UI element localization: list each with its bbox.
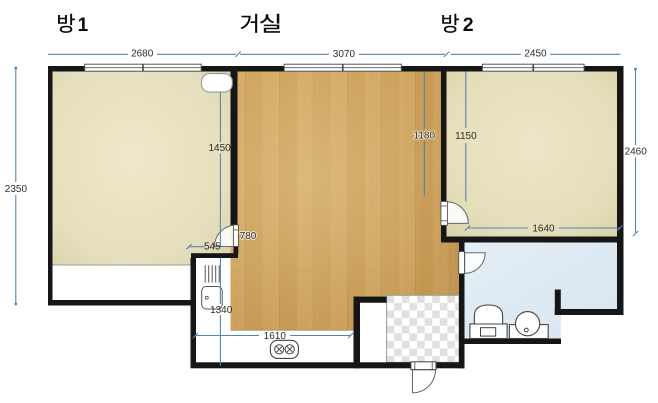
svg-text:1610: 1610: [264, 331, 287, 342]
svg-text:2: 2: [463, 14, 474, 36]
svg-text:3070: 3070: [333, 49, 356, 60]
svg-text:545: 545: [204, 242, 221, 253]
svg-text:1450: 1450: [208, 143, 231, 154]
svg-text:2680: 2680: [131, 49, 154, 60]
svg-text:2350: 2350: [5, 184, 28, 195]
svg-text:1: 1: [78, 15, 89, 36]
svg-text:1340: 1340: [210, 305, 233, 316]
svg-text:2450: 2450: [524, 49, 547, 60]
svg-text:1640: 1640: [532, 224, 555, 235]
svg-text:2460: 2460: [625, 147, 648, 158]
svg-text:1150: 1150: [455, 131, 477, 142]
svg-text:780: 780: [240, 231, 257, 242]
svg-text:1180: 1180: [414, 131, 436, 142]
